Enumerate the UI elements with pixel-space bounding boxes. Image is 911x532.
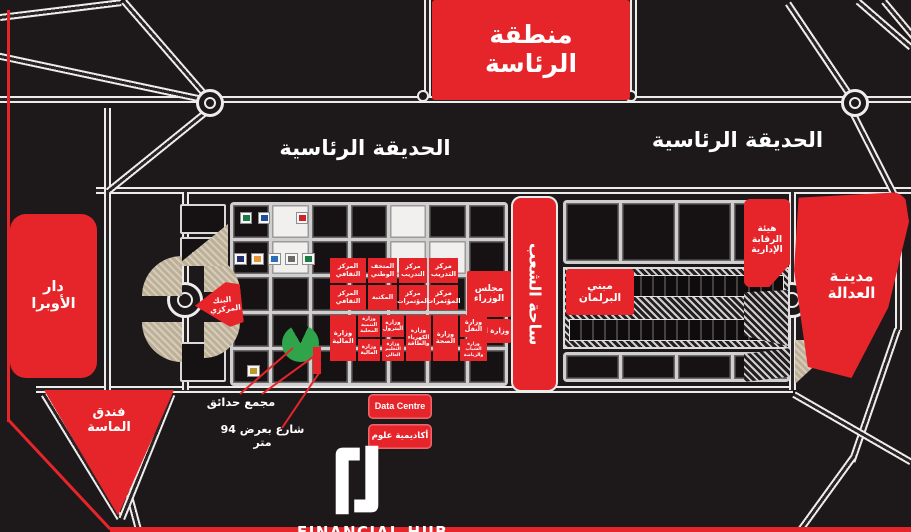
region-presidency-area: منطقة الرئاسة [432,0,630,100]
region-almasa-hotel: فندق الماسة [44,390,174,518]
center-box: مركز التدريب [429,258,458,283]
new-capital-map: منطقة الرئاسة الحديقة الرئاسية الحديقة ا… [0,0,911,532]
center-box: المركز الثقافي [330,285,366,310]
region-label: دار الأوبرا [26,279,82,312]
bank-logo-icon [285,253,298,265]
label-gardens-complex: مجمع حدائق [195,395,287,409]
ministries-row: وزارة المالية وزارة التنمية المحلية وزار… [330,315,487,361]
region-label: مجلس الوزراء [474,284,504,305]
bank-logo-icon [251,253,264,265]
center-box: المركز الثقافي [330,258,366,283]
ministry-box: وزارة التعليم العالي [382,339,404,361]
roundabout-icon [841,89,869,117]
road [0,0,122,21]
region-label: مدينـة العدالة [821,268,883,303]
data-centre-box: Data Centre [368,394,432,419]
region-peoples-square: ساحة الشعب [511,196,558,392]
road [785,2,858,105]
road [797,456,856,532]
region-label: هيئة الرقابة الإدارية [750,224,784,255]
road-node-icon [417,90,429,102]
centers-grid: المركز الثقافي المتحف الوطني مركز التدري… [330,258,458,310]
center-box: المتحف الوطني [368,258,397,283]
region-label: مبني البرلمان [578,280,622,304]
center-box: المكتبة [368,285,397,310]
building-cell [180,204,226,234]
region-cabinet: مجلس الوزراء [467,271,511,317]
region-label: منطقة الرئاسة [466,21,596,79]
label-presidential-garden-left: الحديقة الرئاسية [255,136,475,160]
bank-logo-icon [234,253,247,265]
region-label: فندق الماسة [83,406,135,436]
bank-logo-icon [268,253,281,265]
region-label: ساحة الشعب [525,243,543,345]
ministry-box: وزارة المالية [330,315,356,361]
ministry-box: وزارة البترول [382,315,404,337]
road [106,105,214,194]
center-box: مركز التدريب [399,258,427,283]
ministry-box: وزارة المالية [358,339,380,361]
bank-logo-icon [296,212,308,224]
region-parliament-building: مبني البرلمان [566,269,634,315]
center-box: مركز المؤتمرات [429,285,458,310]
bank-logo-icon [302,253,315,265]
road [630,0,637,97]
logo-title: FINANCIAL HUB [297,523,417,532]
map-border-accent [110,527,911,532]
ministry-box: وزارة النقل [460,315,487,337]
bank-logo-icon [240,212,252,224]
ministry-box: وزارة الشباب والرياضة [460,339,487,361]
roundabout-icon [196,89,224,117]
bank-logo-icon [258,212,270,224]
ministry-box: وزارة الصحة [433,315,458,361]
financial-hub-monogram [332,444,382,516]
region-opera-house: دار الأوبرا [10,214,97,378]
label-street-width: شارع بعرض 94 متر [215,423,310,449]
region-label: البنك المركزي [209,295,237,315]
financial-hub-logo: FINANCIAL HUB NEW CAPITAL [297,444,417,532]
road [424,0,431,97]
road [104,108,111,390]
center-box: مركز المؤتمرات [399,285,427,310]
ministry-box: وزارة التنمية المحلية [358,315,380,337]
label-presidential-garden-right: الحديقة الرئاسية [630,128,845,152]
ministry-box: وزارة الكهرباء والطاقة [406,315,431,361]
